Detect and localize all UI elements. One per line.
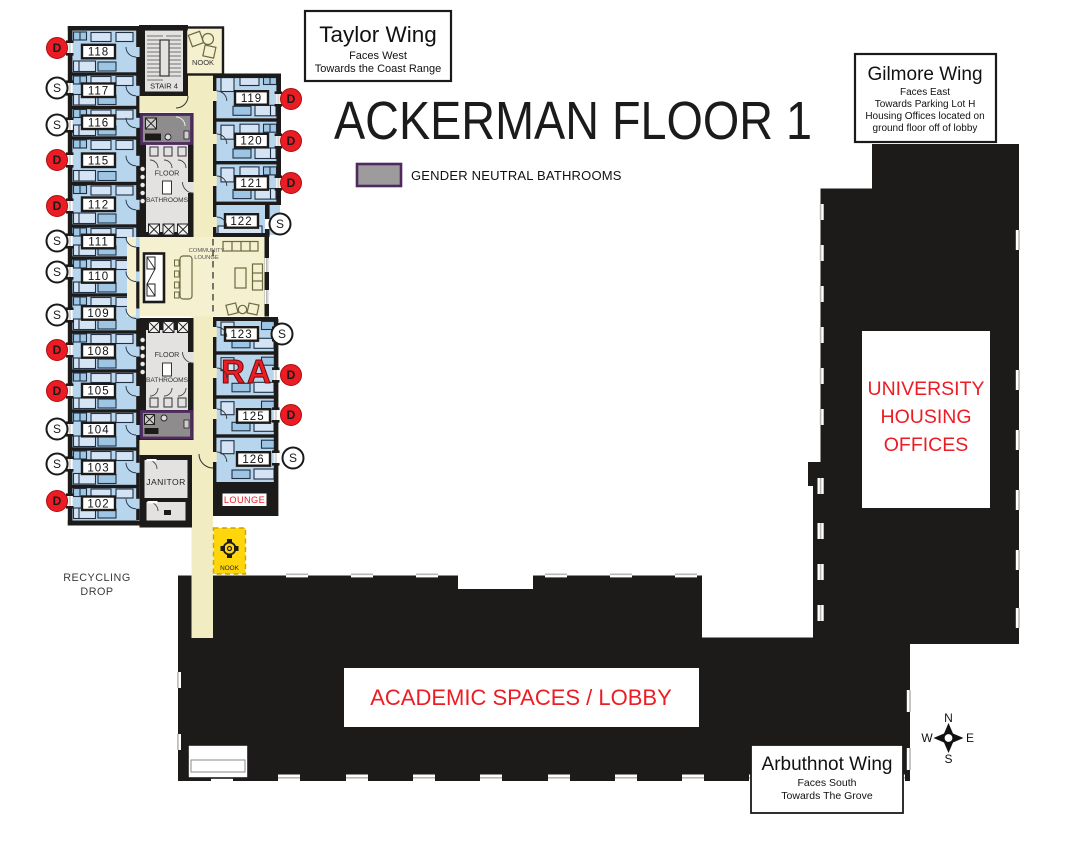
svg-text:D: D <box>53 199 62 213</box>
svg-text:Taylor Wing: Taylor Wing <box>319 22 437 47</box>
svg-text:HOUSING: HOUSING <box>880 406 971 428</box>
svg-text:N: N <box>944 711 953 725</box>
svg-text:S: S <box>53 234 61 248</box>
svg-text:LOUNGE: LOUNGE <box>194 255 219 261</box>
svg-text:119: 119 <box>241 93 262 105</box>
svg-text:126: 126 <box>242 454 264 466</box>
svg-text:116: 116 <box>88 117 109 129</box>
svg-text:RA: RA <box>221 353 273 390</box>
svg-text:FLOOR: FLOOR <box>155 350 180 359</box>
svg-text:D: D <box>53 343 62 357</box>
svg-text:JANITOR: JANITOR <box>146 477 185 487</box>
svg-text:D: D <box>287 134 296 148</box>
svg-text:LOUNGE: LOUNGE <box>224 495 265 505</box>
svg-text:Towards the Coast Range: Towards the Coast Range <box>315 63 442 75</box>
svg-text:STAIR 4: STAIR 4 <box>150 82 178 91</box>
svg-text:D: D <box>287 92 296 106</box>
svg-text:Arbuthnot Wing: Arbuthnot Wing <box>762 754 893 775</box>
svg-text:Faces West: Faces West <box>349 50 407 62</box>
svg-text:BATHROOMS: BATHROOMS <box>146 197 189 204</box>
svg-text:103: 103 <box>87 462 109 474</box>
svg-text:Faces East: Faces East <box>900 87 950 98</box>
svg-text:D: D <box>53 494 62 508</box>
svg-text:120: 120 <box>240 136 262 148</box>
svg-text:RECYCLING: RECYCLING <box>63 572 131 584</box>
svg-text:123: 123 <box>230 329 252 341</box>
svg-text:115: 115 <box>88 155 109 167</box>
svg-text:122: 122 <box>230 216 252 228</box>
svg-text:D: D <box>53 41 62 55</box>
svg-text:104: 104 <box>87 425 109 437</box>
svg-text:121: 121 <box>240 178 262 190</box>
svg-text:Towards Parking Lot H: Towards Parking Lot H <box>875 99 976 110</box>
svg-text:108: 108 <box>87 346 109 358</box>
svg-text:UNIVERSITY: UNIVERSITY <box>867 378 984 400</box>
svg-text:GENDER NEUTRAL BATHROOMS: GENDER NEUTRAL BATHROOMS <box>411 168 622 183</box>
svg-text:102: 102 <box>87 498 109 510</box>
svg-text:111: 111 <box>88 237 108 249</box>
svg-text:117: 117 <box>88 85 109 97</box>
svg-text:NOOK: NOOK <box>220 565 240 572</box>
svg-text:S: S <box>53 308 61 322</box>
svg-text:ACKERMAN FLOOR 1: ACKERMAN FLOOR 1 <box>334 91 812 151</box>
svg-text:NOOK: NOOK <box>192 58 214 67</box>
svg-text:S: S <box>53 265 61 279</box>
svg-text:S: S <box>53 422 61 436</box>
svg-text:109: 109 <box>87 308 109 320</box>
svg-text:COMMUNITY: COMMUNITY <box>189 248 225 254</box>
svg-text:ground floor off of lobby: ground floor off of lobby <box>873 123 978 134</box>
svg-text:D: D <box>53 153 62 167</box>
svg-text:105: 105 <box>87 386 109 398</box>
svg-text:Gilmore Wing: Gilmore Wing <box>867 64 982 85</box>
svg-text:Housing Offices located on: Housing Offices located on <box>865 111 984 122</box>
svg-text:S: S <box>53 81 61 95</box>
svg-text:W: W <box>921 731 933 745</box>
svg-text:D: D <box>287 176 296 190</box>
svg-text:118: 118 <box>88 47 109 59</box>
svg-text:E: E <box>966 731 974 745</box>
svg-text:ACADEMIC SPACES / LOBBY: ACADEMIC SPACES / LOBBY <box>370 685 672 710</box>
svg-text:S: S <box>53 457 61 471</box>
svg-text:OFFICES: OFFICES <box>884 434 969 456</box>
svg-text:125: 125 <box>242 411 264 423</box>
svg-text:BATHROOMS: BATHROOMS <box>146 377 189 384</box>
svg-text:Towards The Grove: Towards The Grove <box>781 790 873 802</box>
svg-text:S: S <box>944 752 952 766</box>
svg-text:S: S <box>278 327 286 341</box>
svg-text:S: S <box>276 217 284 231</box>
svg-text:112: 112 <box>88 199 109 211</box>
svg-text:S: S <box>53 118 61 132</box>
svg-text:DROP: DROP <box>80 586 113 598</box>
svg-text:D: D <box>287 368 296 382</box>
svg-text:Faces South: Faces South <box>798 777 857 789</box>
svg-text:FLOOR: FLOOR <box>155 169 180 178</box>
svg-text:D: D <box>287 408 296 422</box>
svg-text:D: D <box>53 384 62 398</box>
svg-text:S: S <box>289 451 297 465</box>
svg-text:110: 110 <box>88 271 109 283</box>
